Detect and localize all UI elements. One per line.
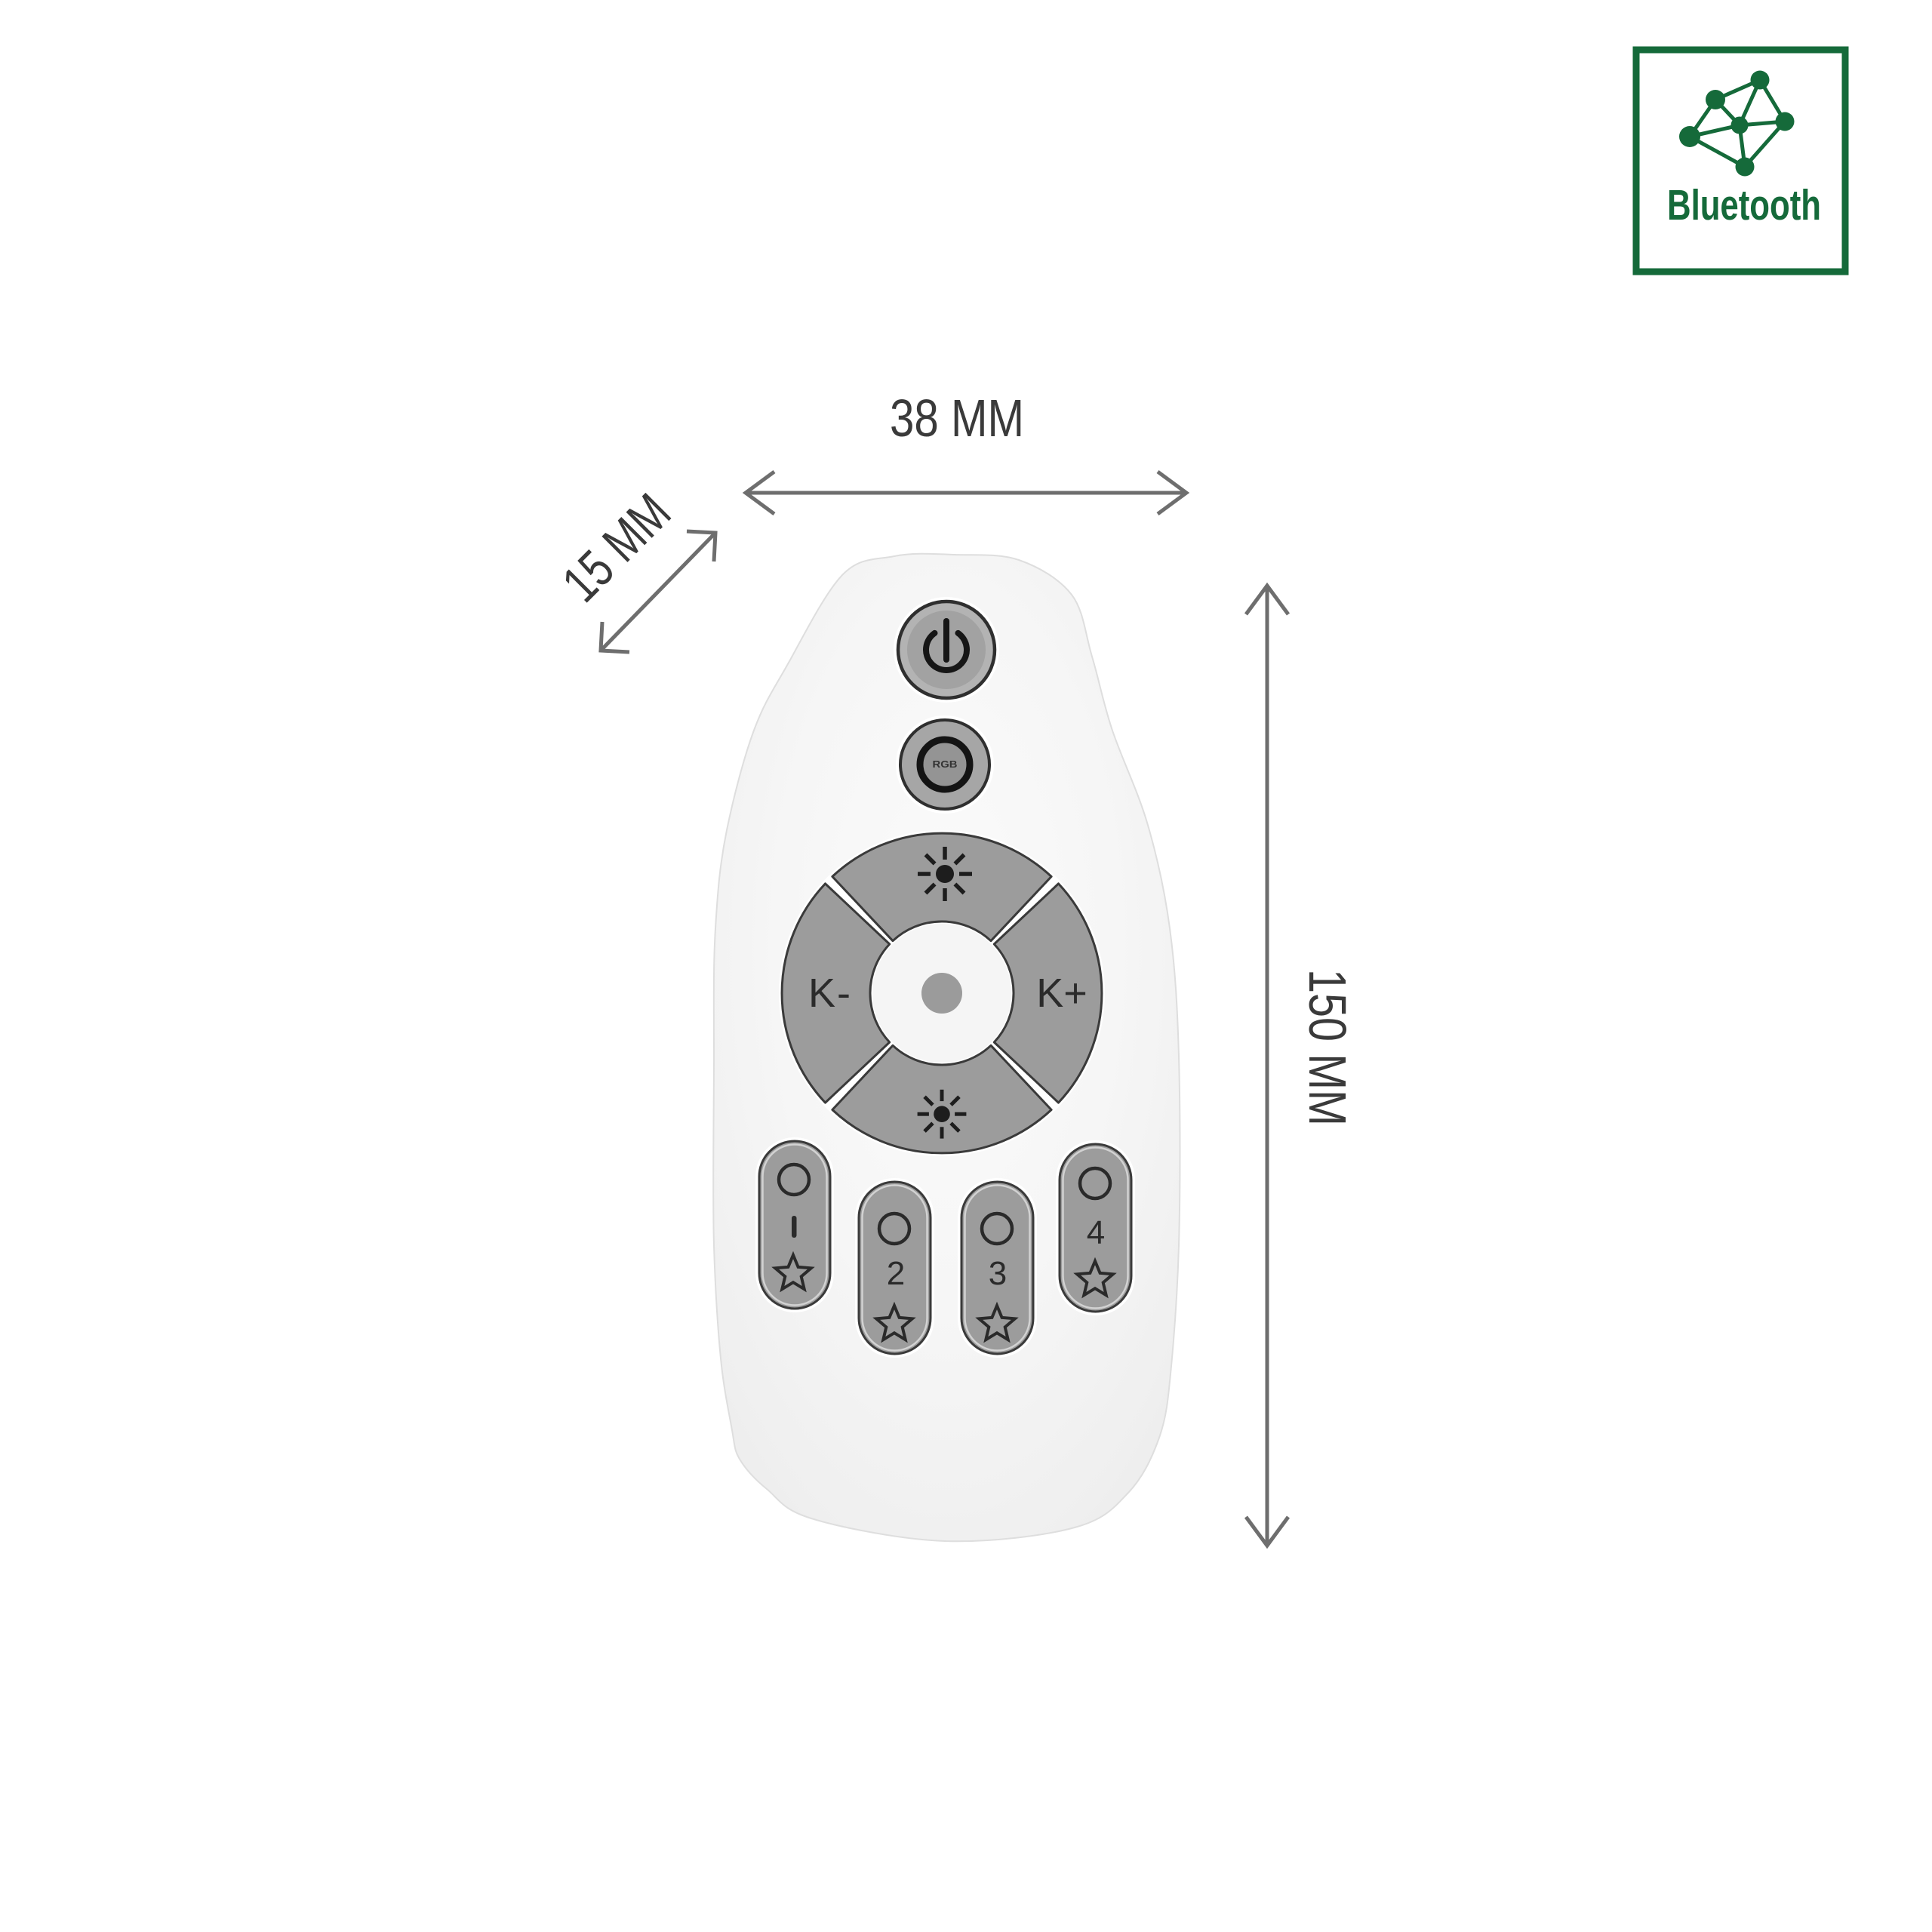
svg-text:K+: K+ <box>1036 971 1088 1016</box>
svg-text:RGB: RGB <box>933 759 958 770</box>
svg-text:3: 3 <box>989 1255 1007 1292</box>
svg-text:15 MM: 15 MM <box>552 483 682 614</box>
svg-text:K-: K- <box>808 971 852 1016</box>
svg-text:150 MM: 150 MM <box>1298 969 1357 1126</box>
svg-text:2: 2 <box>887 1255 905 1292</box>
svg-text:38 MM: 38 MM <box>890 389 1024 448</box>
svg-text:Bluetooth: Bluetooth <box>1667 181 1821 229</box>
svg-text:4: 4 <box>1087 1214 1105 1251</box>
